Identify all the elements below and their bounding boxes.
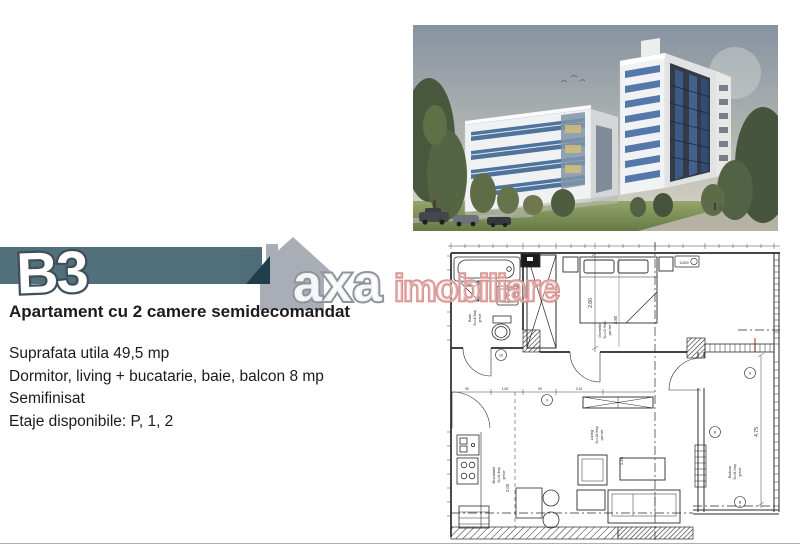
svg-text:Living: Living: [589, 430, 594, 440]
windows: [695, 260, 779, 506]
hall-dim: 90: [538, 387, 542, 391]
svg-text:parchet: parchet: [600, 430, 604, 441]
kitchen-door: [452, 392, 490, 428]
svg-text:parchet: parchet: [608, 325, 612, 336]
banner-fold: [246, 256, 270, 284]
banner-bar: [0, 247, 262, 284]
marker: B: [714, 431, 717, 435]
kitchen-fixtures: [452, 392, 559, 528]
listing-flyer: 11600: [0, 0, 800, 546]
armchair: [578, 455, 607, 485]
detail-finish: Semifinisat: [9, 388, 439, 411]
bedroom-furniture: 11600: [563, 256, 699, 382]
nightstand: [563, 257, 578, 272]
building-photo: [413, 25, 778, 231]
label-dormitor: Dormitor Su=12.9mp parchet: [597, 321, 612, 339]
side-table: [577, 490, 605, 510]
bathroom-door: [463, 348, 491, 376]
hall-dim: 2.10: [576, 387, 583, 391]
svg-text:Su=6.4mp: Su=6.4mp: [497, 467, 501, 483]
detail-surface: Suprafata utila 49,5 mp: [9, 343, 439, 366]
hall-dim: 90: [465, 387, 469, 391]
dim-living: 1.45: [619, 456, 624, 465]
svg-text:Balcon: Balcon: [727, 466, 732, 478]
marker: 10: [499, 354, 503, 358]
label-living: Living Su=18.9mp parchet: [589, 426, 604, 444]
dim-bedroom-w: 2.80: [588, 298, 594, 308]
dim-bedroom-l: 3.80: [613, 315, 618, 324]
svg-text:gresie: gresie: [738, 467, 742, 476]
label-balcon: Balcon Su=8.0mp gresie: [727, 464, 742, 480]
listing-title: Apartament cu 2 camere semidecomandat: [9, 302, 439, 322]
sofa: [608, 490, 680, 523]
coffee-table: [620, 458, 665, 480]
marker: 9: [546, 399, 548, 403]
marker: 8: [749, 372, 751, 376]
person: [714, 203, 716, 210]
svg-text:gresie: gresie: [478, 313, 482, 322]
hall-dim: 1.00: [502, 387, 509, 391]
marker: B: [739, 501, 742, 505]
bed: [580, 257, 657, 323]
toilet-tank: [493, 316, 511, 323]
floor-plan: 11600: [443, 240, 785, 544]
svg-text:Su=18.9mp: Su=18.9mp: [595, 426, 599, 444]
balcony-door: [669, 358, 701, 390]
nightstand: [659, 257, 673, 271]
svg-text:Su=12.9mp: Su=12.9mp: [603, 321, 607, 339]
page-bottom-rule: [0, 543, 800, 544]
stool: [543, 490, 559, 506]
banner-end-block: [240, 250, 262, 284]
dim-texts: 2.80 3.80 1.45 2.00 4.75 90 1.00 90 2.10: [465, 298, 760, 492]
stove: [457, 458, 478, 484]
svg-text:Dormitor: Dormitor: [597, 322, 602, 338]
svg-text:Su=4.3mp: Su=4.3mp: [473, 310, 477, 326]
bedroom-door: [570, 352, 600, 382]
svg-text:gresie: gresie: [502, 470, 506, 479]
radiator-box: 11600: [675, 256, 699, 267]
fridge: [459, 506, 489, 528]
dim-kitchen: 2.00: [505, 483, 510, 492]
radiator-code: 11600: [679, 261, 688, 265]
svg-text:Bucatarie: Bucatarie: [491, 466, 496, 484]
shaft: [527, 255, 556, 348]
label-bucatarie: Bucatarie Su=6.4mp gresie: [491, 466, 506, 484]
detail-floors: Etaje disponibile: P, 1, 2: [9, 411, 439, 434]
axa-house-icon: [250, 237, 336, 310]
unit-code: B3: [15, 239, 88, 306]
detail-rooms: Dormitor, living + bucatarie, baie, balc…: [9, 366, 439, 389]
dim-balcony: 4.75: [754, 427, 760, 437]
label-baie: Baie Su=4.3mp gresie: [467, 310, 482, 326]
balcony-top-band: [705, 344, 774, 352]
svg-text:Baie: Baie: [467, 313, 472, 322]
svg-text:Su=8.0mp: Su=8.0mp: [733, 464, 737, 480]
position-markers: 10 9 8 B B: [496, 350, 756, 508]
kitchen-sink: [457, 435, 479, 455]
listing-details: Suprafata utila 49,5 mp Dormitor, living…: [9, 343, 439, 433]
person: [719, 204, 721, 210]
stool: [543, 512, 559, 528]
kitchen-table: [516, 488, 542, 518]
